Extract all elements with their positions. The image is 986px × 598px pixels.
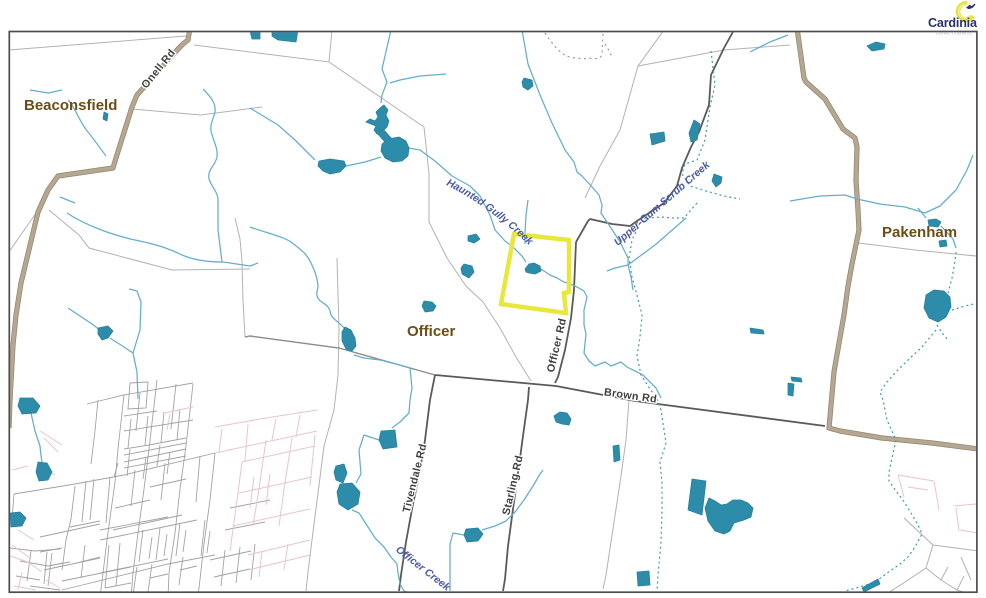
svg-text:SHIRE COUNCIL: SHIRE COUNCIL (936, 31, 973, 36)
svg-text:Beaconsfield: Beaconsfield (24, 97, 117, 114)
svg-text:Cardinia: Cardinia (928, 16, 978, 30)
svg-text:Pakenham: Pakenham (882, 224, 957, 241)
svg-text:Officer: Officer (407, 323, 456, 340)
